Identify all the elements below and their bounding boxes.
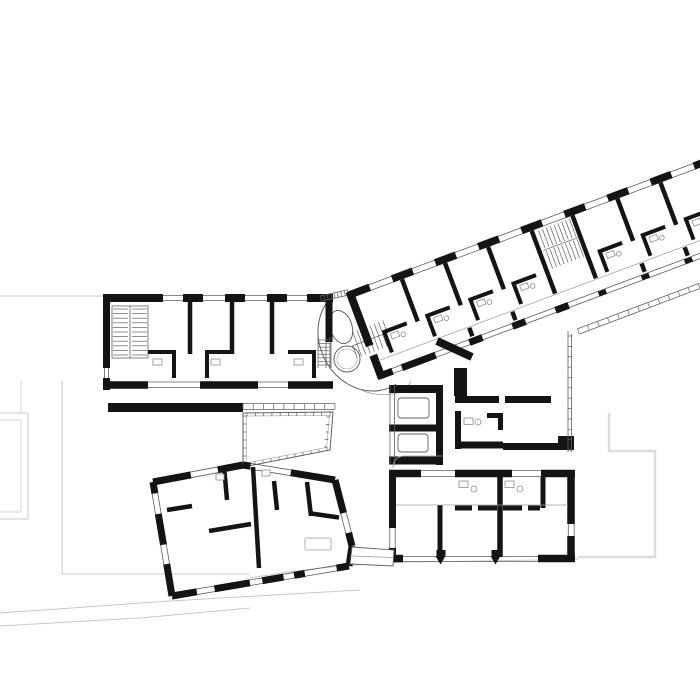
diagonal-wing: [348, 159, 700, 379]
floor-plan-canvas: [0, 0, 700, 700]
courtyard-terrace: [243, 412, 333, 467]
floor-plan-page: [0, 0, 700, 700]
bottom-left-wing: [150, 462, 355, 599]
wing-connector: [350, 547, 394, 566]
bottom-right-wing: [389, 470, 575, 565]
left-wing: [103, 290, 349, 410]
site-lines: [0, 296, 655, 626]
